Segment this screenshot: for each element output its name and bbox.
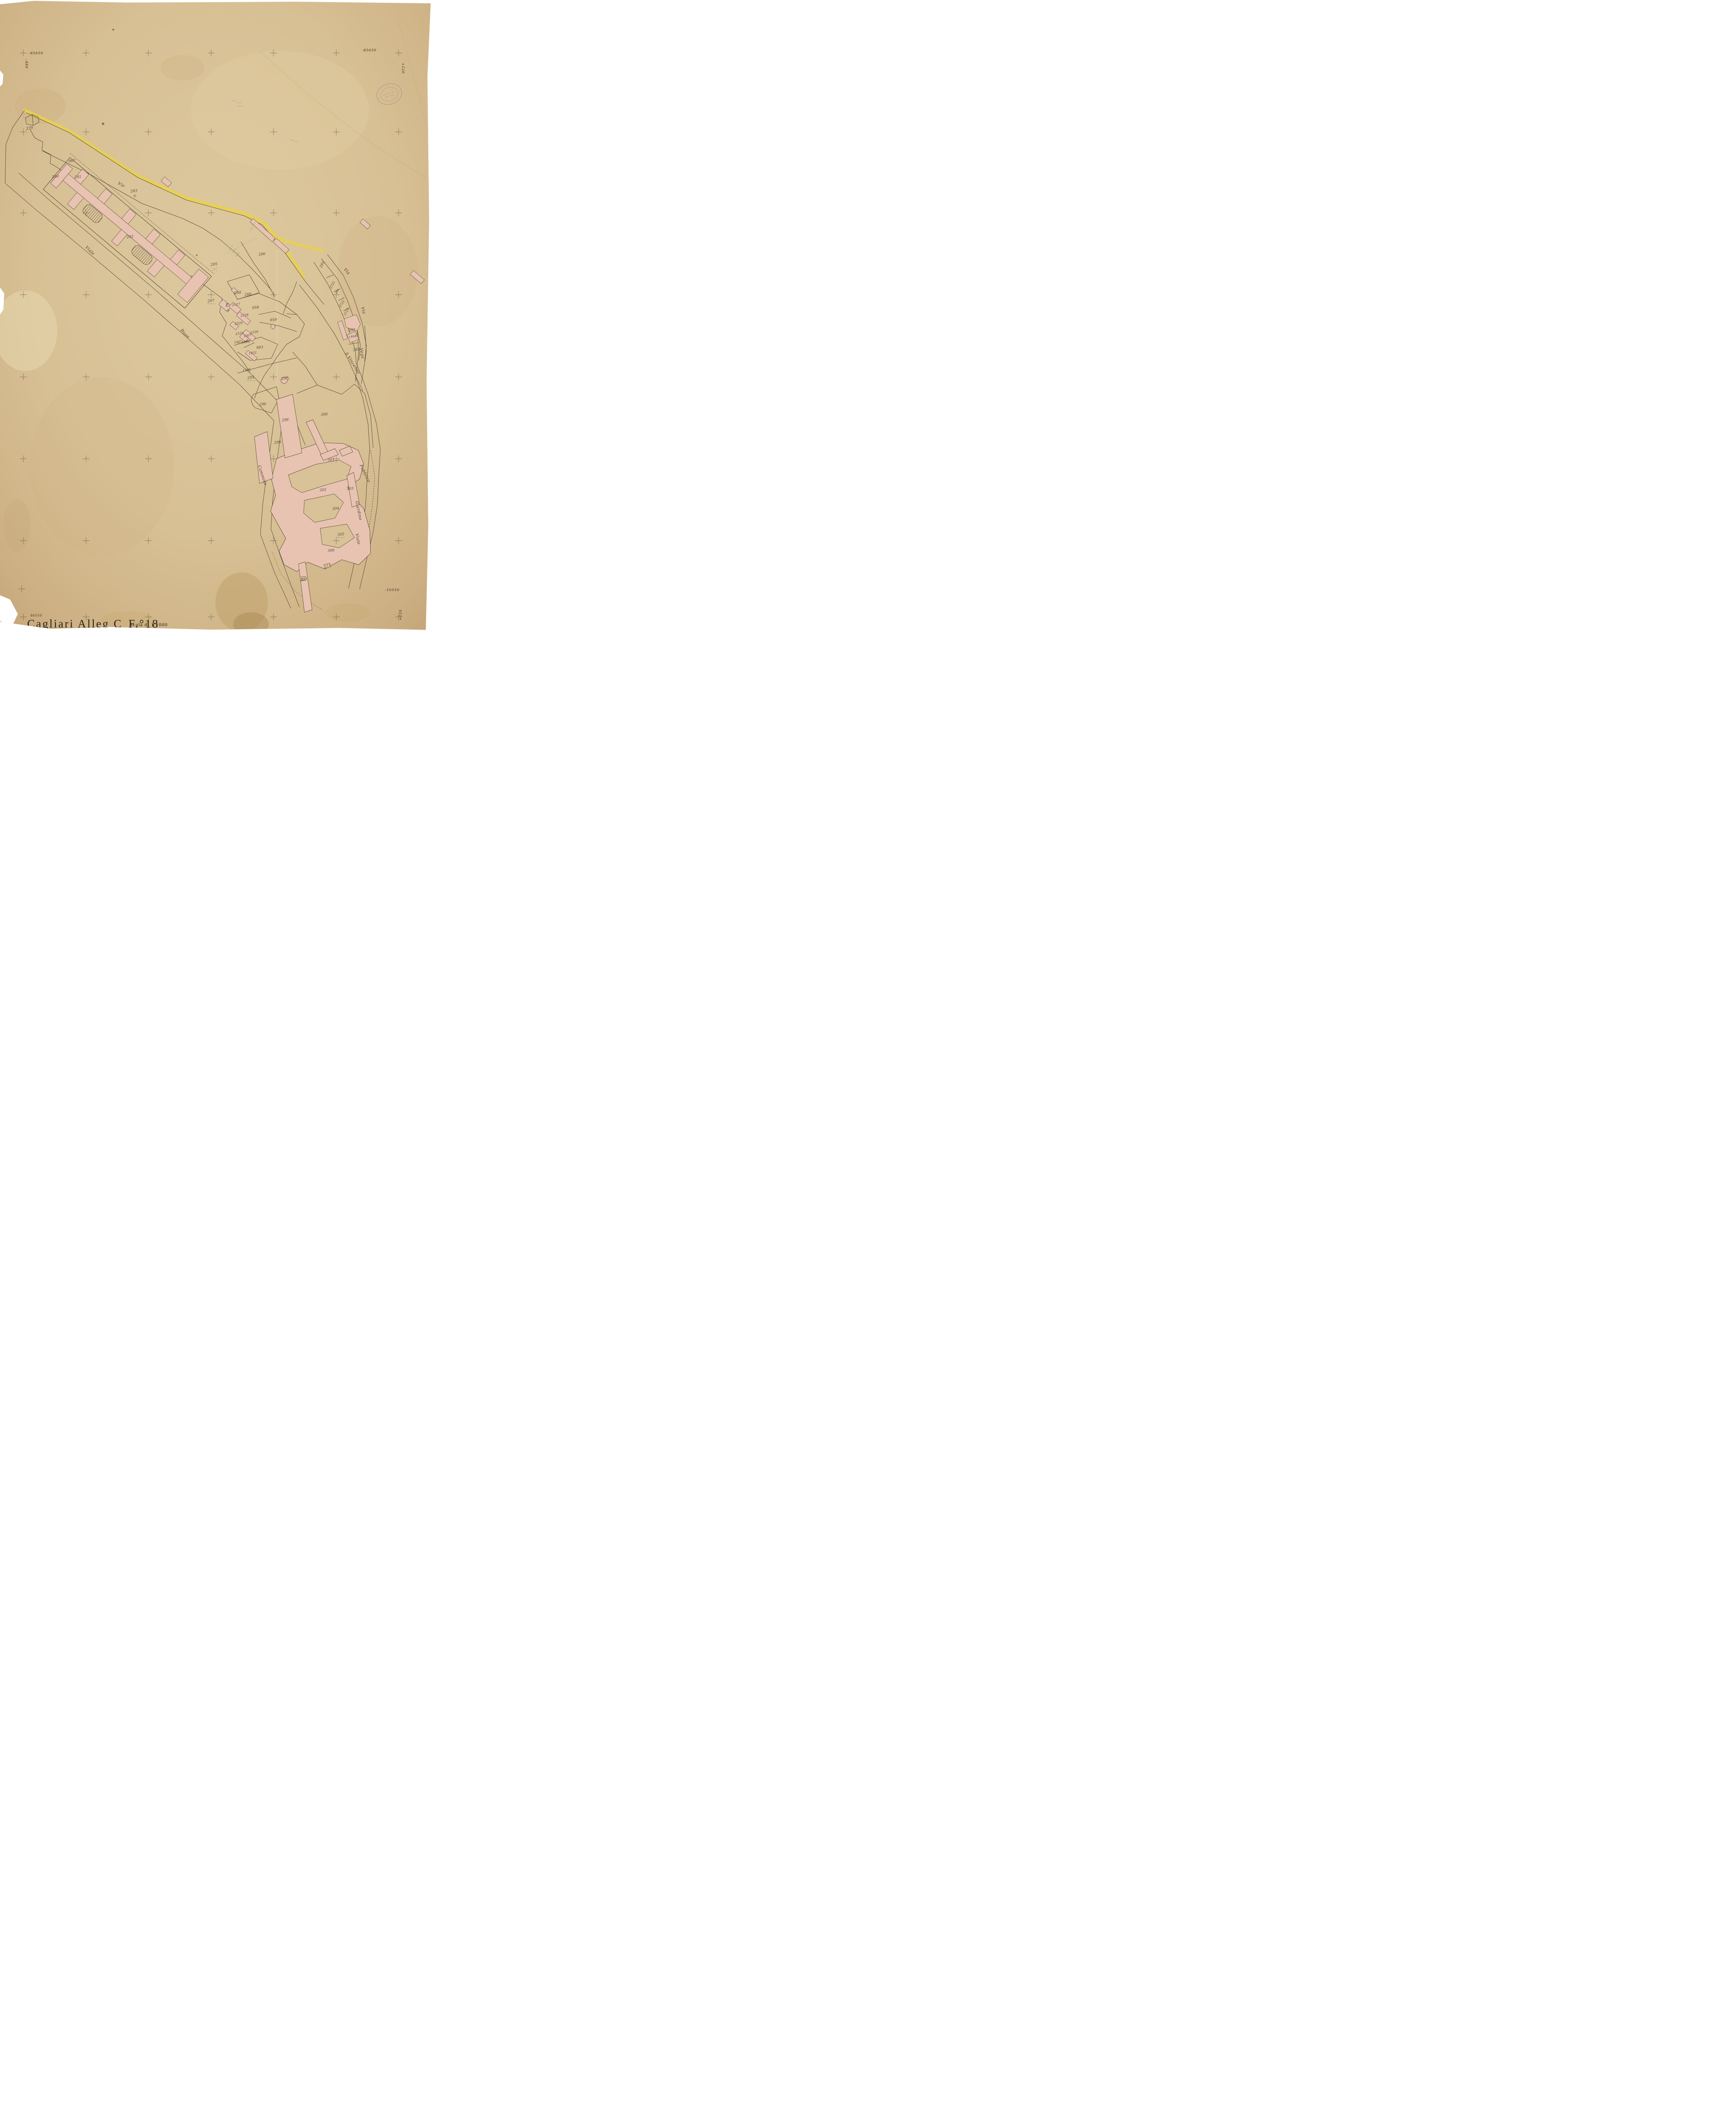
parcel-number: 296	[259, 402, 267, 407]
paper-stain	[191, 51, 369, 170]
cadastral-map-svg: 279967280281283282285286287288289E252795…	[0, 0, 434, 633]
parcel-number: 298	[281, 418, 289, 423]
scale-label: Scala di 1:1000	[130, 622, 168, 628]
parcel-number: 959	[270, 318, 277, 323]
parcel-number: 967	[68, 159, 76, 164]
parcel-number: 305	[337, 532, 344, 537]
parcel-number: 281	[74, 175, 81, 180]
coord-top-right-v: +120	[401, 63, 405, 74]
parcel-number: 282	[126, 234, 134, 240]
parcel-number: 285	[210, 262, 218, 267]
parcel-number: 302	[319, 488, 327, 493]
parcel-number: 306	[327, 548, 335, 553]
parcel-number: 287	[207, 298, 215, 304]
margin-number: 86550	[31, 614, 42, 617]
parcel-number: 304	[332, 506, 339, 511]
parcel-number: 288	[234, 290, 242, 296]
coord-bottom-right-h: -10550	[385, 588, 399, 592]
coord-top-left-h: -85650	[29, 51, 43, 55]
parcel-number: 301	[327, 457, 335, 463]
parcel-number: 983	[256, 345, 263, 350]
paper-stain	[326, 603, 370, 622]
paper-stain	[160, 55, 204, 81]
parcel-number: 303	[346, 486, 354, 491]
ink-spot	[112, 29, 114, 31]
paper-stain	[3, 499, 31, 552]
parcel-number: E	[225, 302, 229, 308]
ink-spot	[196, 254, 198, 256]
map-sheet: 279967280281283282285286287288289E252795…	[0, 0, 434, 633]
coord-bottom-right-v: +120	[399, 609, 402, 620]
parcel-number: 295	[247, 375, 254, 380]
parcel-number: 307	[300, 577, 307, 583]
parcel-number: 299	[274, 440, 282, 445]
parcel-number: 286	[258, 252, 266, 257]
parcel-number: 300	[321, 412, 328, 417]
parcel-number: 958	[252, 305, 260, 310]
ink-spot	[102, 123, 104, 125]
parcel-number: 283	[130, 189, 137, 194]
parcel-number: 292	[348, 328, 355, 333]
paper-stain	[30, 377, 174, 555]
parcel-number: 289	[244, 292, 252, 297]
coord-top-left-v: -480	[25, 59, 28, 69]
parcel-number: 280	[51, 174, 59, 179]
coord-top-right-h: -85650	[362, 48, 377, 52]
